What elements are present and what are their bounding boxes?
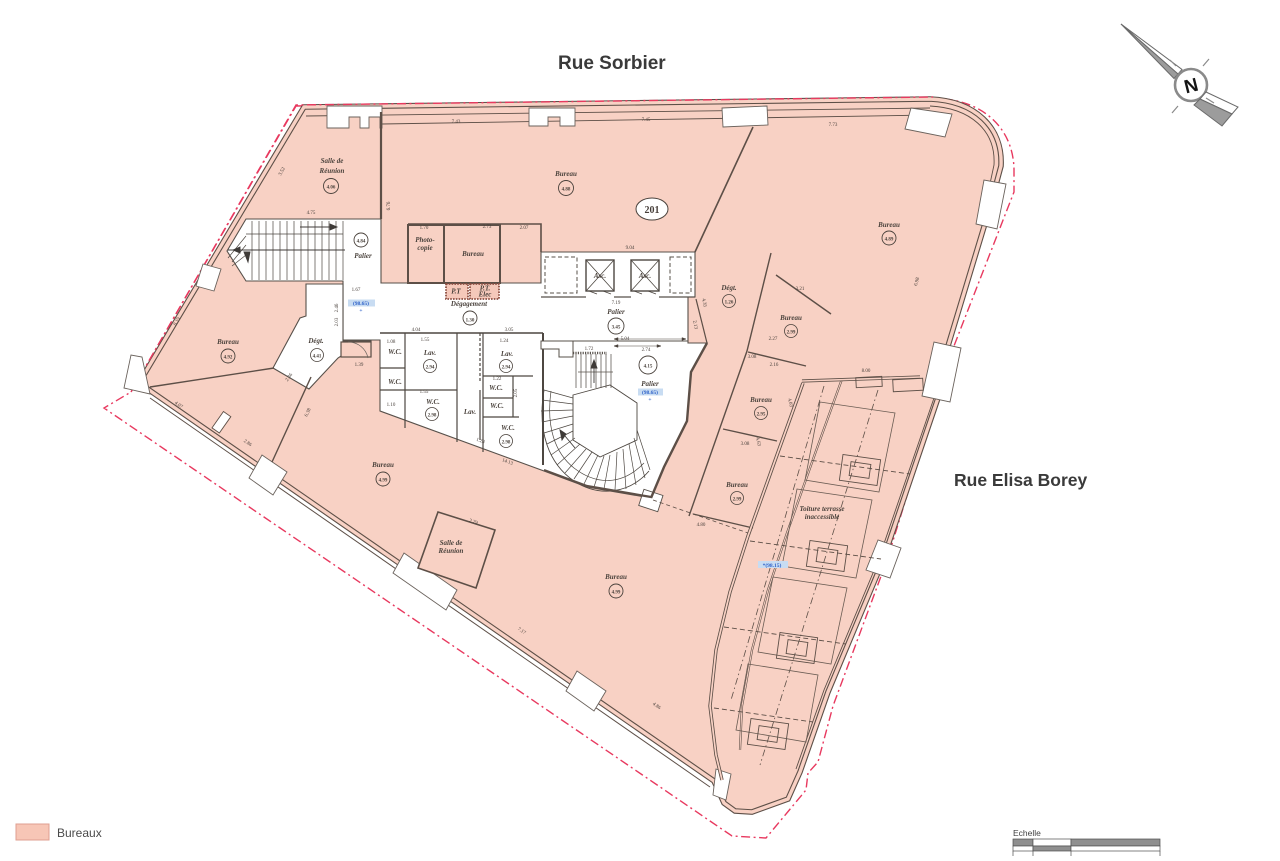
svg-text:Palier: Palier <box>354 252 372 260</box>
svg-text:W.C.: W.C. <box>388 378 402 386</box>
svg-text:7.45: 7.45 <box>642 118 651 123</box>
svg-text:Bureau: Bureau <box>216 338 239 346</box>
svg-text:1.22: 1.22 <box>493 377 502 382</box>
svg-text:Toiture terrasse: Toiture terrasse <box>799 505 844 513</box>
svg-text:3.05: 3.05 <box>505 328 514 333</box>
svg-text:Dégagement: Dégagement <box>450 300 488 308</box>
svg-text:1.30: 1.30 <box>466 319 475 324</box>
svg-text:2.05: 2.05 <box>514 388 519 397</box>
svg-text:inaccessible: inaccessible <box>805 513 840 521</box>
svg-text:9.04: 9.04 <box>626 246 635 251</box>
svg-text:3.45: 3.45 <box>612 326 621 331</box>
svg-text:W.C.: W.C. <box>489 384 503 392</box>
svg-text:Photo-: Photo- <box>415 236 435 244</box>
svg-text:2.03: 2.03 <box>335 317 340 326</box>
svg-text:4.04: 4.04 <box>412 328 421 333</box>
svg-text:Bureau: Bureau <box>371 461 394 469</box>
svg-text:7.43: 7.43 <box>452 120 461 125</box>
svg-text:4.15: 4.15 <box>644 365 653 370</box>
svg-text:4.06: 4.06 <box>327 186 336 191</box>
svg-text:W.C.: W.C. <box>490 402 504 410</box>
svg-text:Dégt.: Dégt. <box>307 337 324 345</box>
svg-text:Réunion: Réunion <box>319 167 345 175</box>
svg-text:Bureau: Bureau <box>877 221 900 229</box>
svg-text:1.10: 1.10 <box>387 403 396 408</box>
svg-text:Elec: Elec <box>478 291 492 299</box>
svg-text:Dégt.: Dégt. <box>720 284 737 292</box>
svg-text:+: + <box>359 308 362 314</box>
svg-text:4.92: 4.92 <box>224 356 233 361</box>
svg-text:4.99: 4.99 <box>379 479 388 484</box>
svg-text:Bureau: Bureau <box>779 314 802 322</box>
svg-text:2.07: 2.07 <box>520 226 529 231</box>
svg-text:7.19: 7.19 <box>612 301 621 306</box>
svg-text:5.04: 5.04 <box>621 337 630 342</box>
svg-text:4.99: 4.99 <box>612 591 621 596</box>
svg-text:Palier: Palier <box>607 308 625 316</box>
svg-text:W.C.: W.C. <box>388 348 402 356</box>
svg-text:4.41: 4.41 <box>313 355 322 360</box>
svg-text:4.75: 4.75 <box>307 211 316 216</box>
svg-text:1.39: 1.39 <box>355 363 364 368</box>
svg-text:201: 201 <box>645 205 660 216</box>
svg-text:1.55: 1.55 <box>421 338 430 343</box>
svg-text:Lav.: Lav. <box>423 349 437 357</box>
svg-text:1.26: 1.26 <box>725 301 734 306</box>
svg-text:Bureau: Bureau <box>554 170 577 178</box>
svg-text:+: + <box>648 397 651 403</box>
svg-text:Bureau: Bureau <box>604 573 627 581</box>
svg-text:2.27: 2.27 <box>769 337 778 342</box>
svg-text:2.73: 2.73 <box>483 225 492 230</box>
svg-text:Lav.: Lav. <box>500 350 514 358</box>
svg-text:P.T: P.T <box>451 288 461 296</box>
svg-text:Lav.: Lav. <box>463 408 477 416</box>
svg-text:2.74: 2.74 <box>642 348 651 353</box>
svg-text:2.95: 2.95 <box>757 413 766 418</box>
svg-text:4.88: 4.88 <box>562 188 571 193</box>
svg-text:Rue Sorbier: Rue Sorbier <box>558 53 666 74</box>
svg-text:2.98: 2.98 <box>502 441 511 446</box>
svg-text:Echelle: Echelle <box>1013 828 1041 838</box>
svg-text:Salle de: Salle de <box>440 539 463 547</box>
svg-text:1.70: 1.70 <box>420 226 429 231</box>
svg-text:Réunion: Réunion <box>438 547 464 555</box>
svg-text:2.94: 2.94 <box>426 366 435 371</box>
svg-text:4.89: 4.89 <box>885 238 894 243</box>
svg-text:(98.65): (98.65) <box>353 300 369 307</box>
svg-text:2.94: 2.94 <box>502 366 511 371</box>
svg-text:Palier: Palier <box>641 380 659 388</box>
svg-text:3.08: 3.08 <box>748 355 757 360</box>
svg-text:2.99: 2.99 <box>733 498 742 503</box>
svg-text:6.76: 6.76 <box>387 201 392 210</box>
svg-text:*(98.15): *(98.15) <box>763 562 782 569</box>
svg-text:2.98: 2.98 <box>428 414 437 419</box>
svg-text:(98.65): (98.65) <box>642 389 658 396</box>
svg-text:1.24: 1.24 <box>500 339 509 344</box>
svg-text:Rue Elisa Borey: Rue Elisa Borey <box>954 470 1088 490</box>
svg-text:4.80: 4.80 <box>697 523 706 528</box>
svg-text:Bureaux: Bureaux <box>57 826 102 840</box>
svg-text:W.C.: W.C. <box>501 424 515 432</box>
svg-text:3.08: 3.08 <box>741 442 750 447</box>
svg-text:1.72: 1.72 <box>585 347 594 352</box>
svg-text:Asc.: Asc. <box>638 272 652 280</box>
svg-text:2.16: 2.16 <box>770 363 779 368</box>
svg-text:Bureau: Bureau <box>749 396 772 404</box>
svg-text:Asc.: Asc. <box>593 272 607 280</box>
svg-text:1.67: 1.67 <box>352 288 361 293</box>
svg-text:3.21: 3.21 <box>796 287 805 292</box>
svg-text:2.99: 2.99 <box>787 331 796 336</box>
svg-text:4.84: 4.84 <box>357 240 366 245</box>
svg-text:2.46: 2.46 <box>335 303 340 312</box>
svg-text:copie: copie <box>417 244 432 252</box>
svg-text:Bureau: Bureau <box>461 250 484 258</box>
svg-text:8.00: 8.00 <box>862 369 871 374</box>
svg-text:7.73: 7.73 <box>829 123 838 128</box>
svg-text:W.C.: W.C. <box>426 398 440 406</box>
svg-text:Bureau: Bureau <box>725 481 748 489</box>
svg-text:1.55: 1.55 <box>420 390 429 395</box>
svg-text:Salle de: Salle de <box>321 157 344 165</box>
svg-text:1.08: 1.08 <box>387 340 396 345</box>
